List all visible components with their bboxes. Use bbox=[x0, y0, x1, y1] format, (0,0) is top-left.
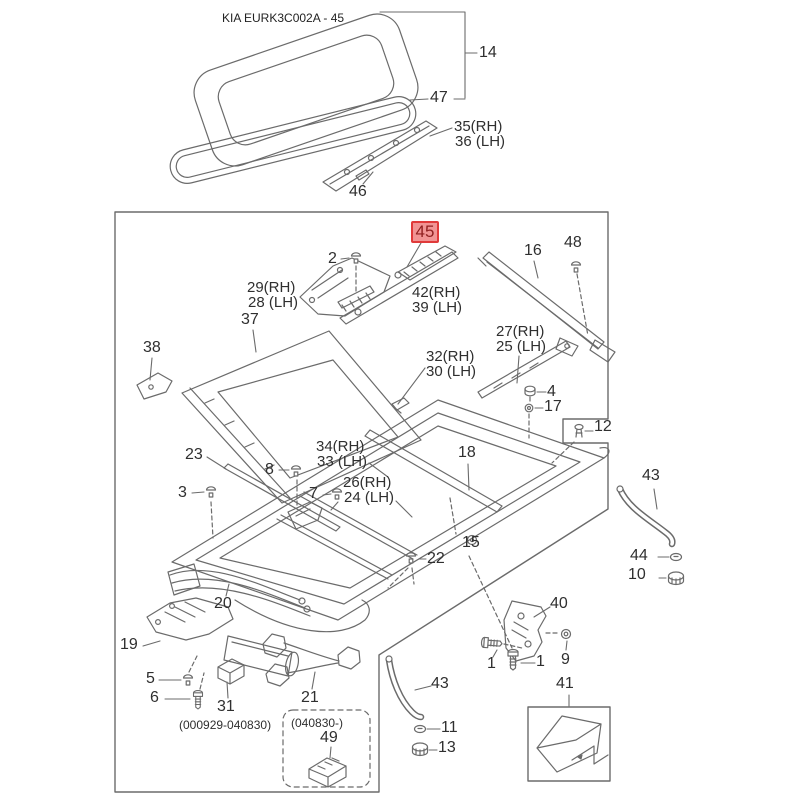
screw-8-icon bbox=[279, 466, 301, 476]
callout-21: 21 bbox=[301, 690, 319, 707]
callout-3: 3 bbox=[178, 485, 187, 502]
callout-25-lh: 25 (LH) bbox=[496, 339, 546, 355]
callout-1-right: 1 bbox=[536, 654, 545, 671]
slider-block-drawing bbox=[288, 502, 338, 529]
callout-8: 8 bbox=[265, 462, 274, 479]
deflector-box-41 bbox=[528, 695, 610, 781]
callout-28-lh: 28 (LH) bbox=[248, 295, 298, 311]
callout-41: 41 bbox=[556, 676, 574, 693]
damper-drawing-31 bbox=[218, 659, 244, 698]
callout-23: 23 bbox=[185, 447, 203, 464]
callout-10: 10 bbox=[628, 567, 646, 584]
callout-2: 2 bbox=[328, 251, 337, 268]
nut-17-icon bbox=[525, 404, 543, 412]
callout-47: 47 bbox=[430, 90, 448, 107]
callout-15: 15 bbox=[462, 535, 480, 552]
cap-10-icon bbox=[659, 572, 684, 585]
cap-13-icon bbox=[413, 743, 438, 756]
harness-drawing-21 bbox=[263, 634, 360, 689]
callout-11: 11 bbox=[441, 720, 458, 737]
callout-19: 19 bbox=[120, 637, 138, 654]
callout-39-lh: 39 (LH) bbox=[412, 300, 462, 316]
callout-13: 13 bbox=[438, 740, 456, 757]
callout-5: 5 bbox=[146, 671, 155, 688]
callout-9: 9 bbox=[561, 652, 570, 669]
highlighted-callout-45[interactable]: 45 bbox=[411, 221, 439, 243]
guide-bracket-drawing-29-28 bbox=[300, 258, 390, 316]
callout-43-bottom: 43 bbox=[431, 676, 449, 693]
shade-clip-drawing-32-30 bbox=[392, 368, 425, 413]
drain-hose-drawing-43-right bbox=[617, 486, 672, 544]
plug-11-icon bbox=[415, 726, 441, 733]
plug-44-icon bbox=[658, 554, 682, 561]
diagram-line-art bbox=[0, 0, 800, 800]
screw-3-icon bbox=[192, 487, 216, 497]
shade-stopper-drawing-38 bbox=[137, 358, 172, 399]
screw-5-icon bbox=[159, 675, 193, 685]
callout-36-lh: 36 (LH) bbox=[455, 134, 505, 150]
callout-33-lh: 33 (LH) bbox=[317, 454, 367, 470]
callout-49: 49 bbox=[320, 730, 338, 747]
callout-16: 16 bbox=[524, 243, 542, 260]
callout-46: 46 bbox=[349, 184, 367, 201]
callout-48: 48 bbox=[564, 235, 582, 252]
top-leader-lines bbox=[363, 12, 477, 184]
callout-20: 20 bbox=[214, 596, 232, 613]
callout-22: 22 bbox=[427, 551, 445, 568]
grommet-4-icon bbox=[525, 386, 546, 396]
glass-seal-drawing bbox=[167, 93, 420, 187]
production-range-late: (040830-) bbox=[291, 717, 343, 730]
relay-connector-drawing-49 bbox=[309, 747, 346, 787]
nut-9-icon bbox=[562, 630, 571, 651]
callout-43-right: 43 bbox=[642, 468, 660, 485]
drain-hose-drawing-43-bottom bbox=[386, 656, 431, 717]
callout-40: 40 bbox=[550, 596, 568, 613]
callout-7: 7 bbox=[309, 486, 318, 503]
callout-44: 44 bbox=[630, 548, 648, 565]
diagram-title: KIA EURK3C002A - 45 bbox=[222, 11, 344, 25]
bolt-6-icon bbox=[165, 691, 203, 709]
callout-1-left: 1 bbox=[487, 656, 496, 673]
callout-6: 6 bbox=[150, 690, 159, 707]
drive-cable-drawing-20 bbox=[168, 564, 369, 632]
callout-38: 38 bbox=[143, 340, 161, 357]
callout-17: 17 bbox=[544, 399, 562, 416]
callout-31: 31 bbox=[217, 699, 235, 716]
callout-30-lh: 30 (LH) bbox=[426, 364, 476, 380]
production-range-early: (000929-040830) bbox=[179, 719, 271, 732]
callout-24-lh: 24 (LH) bbox=[344, 490, 394, 506]
screw-48-icon bbox=[572, 262, 589, 336]
parts-diagram-page: KIA EURK3C002A - 45 45 14 47 35(RH) 36 (… bbox=[0, 0, 800, 800]
clip-12-icon bbox=[575, 425, 593, 438]
callout-14: 14 bbox=[479, 45, 497, 62]
frame-assembly-drawing-18-15 bbox=[172, 400, 609, 620]
callout-18: 18 bbox=[458, 445, 476, 462]
callout-37: 37 bbox=[241, 312, 259, 329]
callout-12: 12 bbox=[594, 419, 612, 436]
